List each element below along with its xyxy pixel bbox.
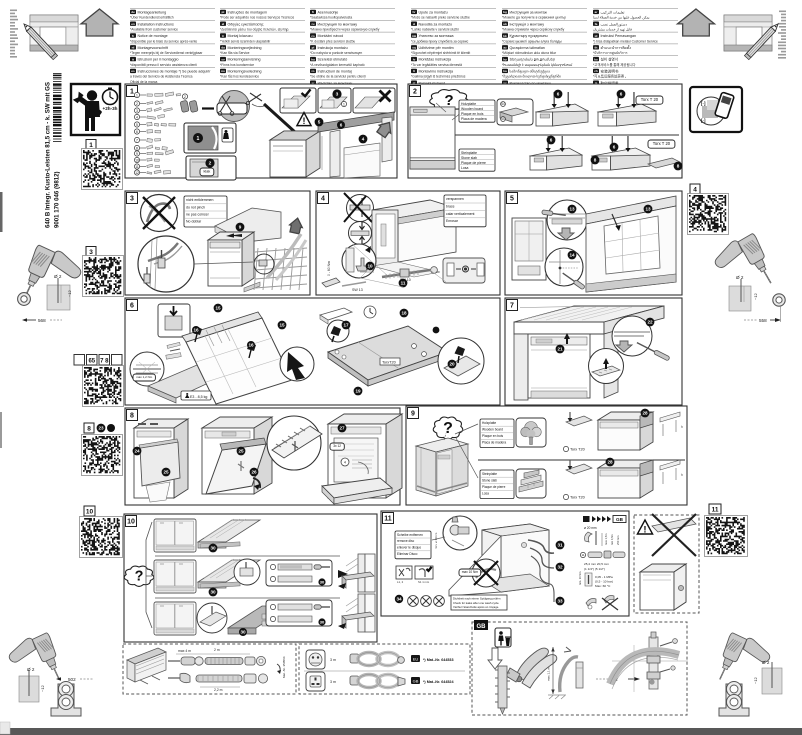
svg-text:Plaque de pierre: Plaque de pierre [461, 161, 486, 165]
svg-text:28: 28 [642, 411, 648, 416]
svg-text:640 B Integr. Kusto-Leisten 81: 640 B Integr. Kusto-Leisten 81,5 cm - k.… [45, 82, 52, 228]
svg-text:15: 15 [215, 306, 221, 311]
svg-text:Инструкция по монтажу: Инструкция по монтажу [318, 22, 358, 26]
svg-text:11: 11 [384, 516, 392, 523]
svg-text:*Saatavissa huoltopalvelusta: *Saatavissa huoltopalvelusta [310, 16, 352, 20]
svg-text:*Sigurohet nëpërmjet shërbimit: *Sigurohet nëpërmjet shërbimit të klient… [411, 51, 470, 55]
svg-text:Torx T20: Torx T20 [570, 448, 585, 452]
svg-text:~12: ~12 [753, 676, 758, 684]
svg-text:7 8: 7 8 [100, 359, 109, 365]
svg-text:502: 502 [68, 677, 76, 682]
svg-text:Οδηγίες εγκατάστασης: Οδηγίες εγκατάστασης [228, 22, 264, 26]
svg-text:*可从售后服务处获得 。: *可从售后服务处获得 。 [593, 74, 628, 79]
svg-text:Vérifier l'étanchéité après un: Vérifier l'étanchéité après un rinçage. [453, 605, 499, 609]
svg-text:Udhëzime për montim: Udhëzime për montim [419, 46, 454, 50]
svg-text:verspannen: verspannen [446, 197, 464, 201]
svg-text:~12: ~12 [67, 289, 72, 297]
svg-text:*հասանելի է սպասարկման կենտրոն: *հասանելի է սպասարկման կենտրոնում [502, 63, 572, 67]
svg-text:5: 5 [510, 196, 514, 203]
svg-text:ka: ka [503, 69, 507, 73]
svg-text:2: 2 [136, 102, 138, 106]
svg-text:S1 1 mm: S1 1 mm [418, 580, 430, 584]
svg-text:9001 170 046 (9812): 9001 170 046 (9812) [54, 171, 61, 228]
svg-text:*се добива преку службата за с: *се добива преку службата за сервис [411, 39, 469, 43]
svg-text:Enrosar: Enrosar [446, 219, 459, 223]
svg-text:3: 3 [130, 196, 134, 203]
svg-text:Instrucciones de montaje *) S: Instrucciones de montaje *) Se puede adq… [138, 70, 212, 74]
svg-text:!: ! [643, 524, 646, 535]
svg-text:25: 25 [238, 449, 244, 454]
svg-text:GB: GB [477, 624, 487, 630]
svg-text:*Tegen meerprijs bij de Servic: *Tegen meerprijs bij de Servicedienst ve… [130, 51, 203, 55]
svg-text:Max: 60 °C: Max: 60 °C [595, 584, 611, 588]
svg-text:(1 1/4") (5 1/2"): (1 1/4") (5 1/2") [584, 567, 605, 571]
svg-text:Placa de madera: Placa de madera [482, 441, 506, 445]
svg-text:11: 11 [581, 553, 584, 557]
svg-text:5: 5 [136, 123, 138, 127]
svg-text:pl: pl [312, 46, 315, 50]
svg-text:Upute za montažu: Upute za montažu [419, 11, 448, 15]
svg-text:Montagevoorschrift: Montagevoorschrift [138, 46, 169, 50]
svg-text:Montageanleitung: Montageanleitung [138, 11, 167, 15]
svg-text:3: 3 [136, 109, 138, 113]
svg-text:Instruções de montagem: Instruções de montagem [228, 11, 268, 15]
svg-text:21: 21 [557, 347, 563, 352]
svg-text:คำแนะนำการติดตั้ง: คำแนะนำการติดตั้ง [601, 45, 632, 50]
svg-text:sq: sq [412, 46, 416, 50]
svg-text:10: 10 [127, 519, 135, 526]
svg-text:4: 4 [136, 115, 138, 119]
svg-text:6: 6 [340, 123, 343, 128]
svg-text:[·]: [·] [701, 101, 706, 106]
svg-text:Instrucțiuni de montaj: Instrucțiuni de montaj [318, 70, 352, 74]
svg-text:max 1,1 m: max 1,1 m [547, 666, 551, 681]
svg-text:Steinplatte: Steinplatte [482, 472, 497, 476]
svg-text:*Можете да получите в сервизни: *Можете да получите в сервизния център [502, 16, 566, 20]
svg-text:3: 3 [89, 249, 93, 256]
svg-text:Losa: Losa [482, 492, 489, 496]
svg-text:~12: ~12 [753, 292, 758, 300]
svg-text:8: 8 [677, 164, 680, 169]
svg-text:1: 1 [197, 136, 200, 142]
svg-text:Instruksi Pemasangan: Instruksi Pemasangan [601, 34, 637, 38]
svg-text:6: 6 [136, 130, 138, 134]
svg-text:19: 19 [355, 389, 361, 394]
svg-text:4: 4 [321, 196, 325, 203]
svg-text:*Müştəri xidmətindən əldə olun: *Müştəri xidmətindən əldə oluna bilər [502, 51, 557, 55]
svg-text:Eliminar Disco: Eliminar Disco [397, 552, 418, 556]
svg-text:zh: zh [594, 69, 598, 73]
svg-text:cs: cs [311, 34, 315, 38]
svg-text:SW 13: SW 13 [352, 288, 363, 292]
svg-text:GB: GB [413, 678, 419, 683]
svg-text:2: 2 [184, 95, 186, 99]
svg-text:30: 30 [210, 590, 216, 595]
svg-text:hu: hu [311, 57, 315, 61]
svg-text:nicht entklemmen: nicht entklemmen [186, 198, 213, 202]
svg-text:31: 31 [557, 543, 563, 548]
svg-text:65: 65 [88, 359, 95, 365]
svg-text:33: 33 [557, 599, 563, 604]
svg-text:kk: kk [503, 34, 507, 38]
svg-text:*Διατίθενται μέσω του σέρβις π: *Διατίθενται μέσω του σέρβις πελατών, εξ… [220, 28, 289, 32]
svg-text:*A vevőszolgálaton keresztül k: *A vevőszolgálaton keresztül kapható [310, 63, 365, 67]
svg-text:Wooden board: Wooden board [482, 427, 503, 431]
svg-text:Monteringsveiledning: Monteringsveiledning [228, 70, 262, 74]
svg-text:11: 11 [401, 281, 406, 286]
svg-text:Упатство за монтажа: Упатство за монтажа [419, 34, 454, 38]
svg-text:?: ? [443, 420, 453, 437]
svg-text:*Über Kundendienst erhältlich: *Über Kundendienst erhältlich [130, 16, 174, 20]
svg-text:Տեղադրման ցուցումներ: Տեղադրման ցուցումներ [510, 57, 556, 62]
svg-text:Steinplatte: Steinplatte [461, 151, 477, 155]
svg-text:*Available from customer servi: *Available from customer service [130, 28, 178, 32]
svg-text:max 4 m: max 4 m [178, 649, 191, 653]
svg-text:7: 7 [510, 303, 514, 310]
svg-text:1: 1 [136, 93, 138, 97]
svg-text:6: 6 [557, 92, 560, 97]
svg-text:*disponible par le biais du se: *disponible par le biais du service aprè… [130, 39, 197, 43]
svg-text:!: ! [303, 116, 306, 126]
svg-text:EU: EU [413, 656, 419, 661]
svg-text:[·]: [·] [701, 118, 706, 123]
svg-text:fa: fa [595, 22, 598, 26]
svg-text:9: 9 [239, 225, 242, 230]
svg-text:uk: uk [503, 22, 507, 26]
svg-text:دستورالعمل نصب: دستورالعمل نصب [601, 21, 628, 26]
svg-text:30: 30 [240, 630, 246, 635]
svg-text:14: 14 [569, 253, 575, 258]
svg-text:sl: sl [413, 22, 416, 26]
svg-text:قابل تهیه از خدمات مشتریان: قابل تهیه از خدمات مشتریان [593, 28, 632, 32]
svg-text:20: 20 [449, 362, 455, 367]
svg-text:3x 12: 3x 12 [333, 444, 341, 448]
svg-text:4: 4 [693, 186, 697, 193]
svg-text:(0,5 - 10 bar): (0,5 - 10 bar) [595, 580, 613, 584]
svg-text:23: 23 [98, 426, 104, 431]
svg-text:1: 1 [89, 142, 93, 149]
svg-text:ro: ro [311, 69, 314, 73]
svg-text:h: h [681, 425, 683, 429]
svg-text:2 m: 2 m [214, 648, 220, 652]
svg-text:lv: lv [413, 57, 416, 61]
svg-text:64: 64 [501, 102, 505, 106]
svg-text:*Kan fås via Service: *Kan fås via Service [220, 51, 250, 55]
svg-text:lt: lt [413, 69, 415, 73]
svg-text:Ø 2: Ø 2 [736, 275, 744, 280]
svg-text:Torx T20: Torx T20 [570, 496, 585, 500]
svg-text:pt: pt [222, 10, 225, 14]
svg-text:10: 10 [86, 508, 94, 515]
svg-text:27: 27 [339, 426, 345, 431]
svg-text:*To var iegādāties servisa die: *To var iegādāties servisa dienestā [411, 63, 462, 67]
svg-text:25: 25 [163, 470, 169, 475]
svg-text:h: h [681, 473, 683, 477]
svg-text:*Do nabycia w punkcie serwisow: *Do nabycia w punkcie serwisowym [310, 51, 362, 55]
svg-text:16: 16 [248, 343, 254, 348]
svg-text:Holzplatte: Holzplatte [482, 421, 496, 425]
svg-text:22: 22 [647, 320, 653, 325]
svg-text:*Može se nabaviti preko servis: *Može se nabaviti preko servisne službe [411, 16, 470, 20]
svg-text:Monteringsvejledning: Monteringsvejledning [228, 46, 262, 50]
svg-text:8: 8 [130, 413, 134, 420]
svg-text:34: 34 [396, 597, 402, 602]
svg-text:remove disc: remove disc [397, 539, 415, 543]
svg-text:no: no [221, 69, 225, 73]
svg-text:min. ø 10mm: min. ø 10mm [434, 532, 438, 549]
svg-text:fi: fi [312, 10, 314, 14]
svg-text:Torx T 20: Torx T 20 [653, 141, 671, 146]
svg-text:az: az [503, 46, 507, 50]
svg-text:Oficial de la marca: Oficial de la marca [130, 80, 157, 84]
svg-text:10: 10 [135, 158, 139, 162]
svg-text:*Yetkili servis üzerinden ulaş: *Yetkili servis üzerinden ulaşılabilir [220, 39, 271, 43]
svg-text:klak: klak [204, 170, 211, 174]
svg-text:4: 4 [362, 137, 365, 142]
svg-text:*Lahko nabavite v servisni slu: *Lahko nabavite v servisni službi [411, 28, 459, 32]
svg-text:6: 6 [130, 303, 134, 310]
svg-text:Monteringsanvisning: Monteringsanvisning [228, 58, 261, 62]
svg-text:*Можно приобрести через сервис: *Можно приобрести через сервисную службу [310, 28, 380, 32]
svg-text:3 m: 3 m [330, 658, 336, 662]
svg-text:max 1,2 Nm: max 1,2 Nm [136, 375, 153, 379]
svg-text:TorxT20: TorxT20 [382, 361, 396, 365]
svg-text:13: 13 [569, 207, 575, 212]
svg-text:da: da [221, 46, 225, 50]
svg-text:Құрастыру нұсқаулығы: Құрастыру нұсқаулығы [510, 34, 548, 38]
svg-text:11: 11 [135, 165, 139, 169]
svg-text:8: 8 [594, 158, 597, 163]
svg-text:Instrukcja montażu: Instrukcja montażu [318, 46, 348, 50]
svg-text:*შეგიძლიათ მიიღოთ სერვისცენტრშ: *შეგიძლიათ მიიღოთ სერვისცენტრში [502, 75, 561, 79]
svg-text:13: 13 [645, 207, 651, 212]
svg-text:სამონტაჟო ინსტრუქცია: სამონტაჟო ინსტრუქცია [510, 69, 551, 74]
svg-text:Stone slab: Stone slab [482, 478, 497, 482]
svg-text:*Se obține de la serviciul pen: *Se obține de la serviciul pentru clienț… [310, 75, 366, 79]
svg-text:15: 15 [279, 323, 285, 328]
svg-text:*disponibili presso il servizi: *disponibili presso il servizio assisten… [130, 63, 197, 67]
svg-text:4: 4 [344, 461, 346, 465]
svg-text:ko: ko [594, 57, 598, 61]
svg-text:Asennusohje: Asennusohje [318, 11, 339, 15]
svg-text:Stone slab: Stone slab [461, 156, 477, 160]
svg-text:Інструкція з монтажу: Інструкція з монтажу [510, 22, 545, 26]
svg-text:Инструкция за монтаж: Инструкция за монтаж [510, 11, 548, 15]
svg-text:9: 9 [411, 411, 415, 418]
svg-text:nl: nl [132, 46, 135, 50]
svg-text:9: 9 [136, 152, 138, 156]
svg-text:Navodila za montažo: Navodila za montažo [419, 22, 453, 26]
svg-text:calar verticalement: calar verticalement [446, 212, 475, 216]
svg-text:L1, 2: L1, 2 [397, 580, 404, 584]
svg-text:Placa de madera: Placa de madera [461, 117, 487, 121]
svg-text:3 m: 3 m [330, 680, 336, 684]
svg-text:Quraşdırma təlimatları: Quraşdırma təlimatları [510, 46, 546, 50]
svg-text:25,4 mm 20,5 mm: 25,4 mm 20,5 mm [584, 562, 609, 566]
svg-text:*) bisa didapatkan melalui Cus: *) bisa didapatkan melalui Customer Serv… [593, 39, 658, 43]
svg-text:E3 - 8,5 kg: E3 - 8,5 kg [190, 395, 207, 399]
svg-text:enlever le disque: enlever le disque [397, 546, 421, 550]
svg-text:*มีบริการจากศูนย์บริการ: *มีบริการจากศูนย์บริการ [593, 50, 628, 55]
svg-text:65: 65 [501, 117, 505, 121]
svg-text:6: 6 [620, 92, 623, 97]
svg-text:ø 20 mm: ø 20 mm [584, 526, 597, 530]
svg-text:do not pinch: do not pinch [186, 205, 205, 209]
svg-text:11: 11 [712, 506, 719, 513]
svg-text:24: 24 [134, 449, 140, 454]
svg-text:28: 28 [607, 460, 613, 465]
svg-text:2: 2 [209, 161, 212, 167]
svg-text:min 0,5m: min 0,5m [610, 534, 614, 545]
svg-text:No doblar: No doblar [186, 220, 202, 224]
svg-text:bg: bg [503, 10, 507, 14]
svg-text:12: 12 [135, 171, 139, 175]
svg-text:32: 32 [557, 565, 563, 570]
svg-text:ru: ru [311, 22, 314, 26]
svg-text:30: 30 [210, 546, 216, 551]
svg-text:mm. 10 Nm: mm. 10 Nm [578, 572, 582, 585]
svg-text:0 - 60 Nm: 0 - 60 Nm [327, 261, 331, 276]
svg-text:brace: brace [446, 204, 455, 208]
svg-text:?: ? [444, 92, 453, 109]
svg-text:18: 18 [401, 311, 407, 316]
svg-text:يمكن الحصول عليها من خدمة العم: يمكن الحصول عليها من خدمة العملاء لدينا [593, 16, 649, 20]
svg-text:a través del Servicio de Asist: a través del Servicio de Asistencia Técn… [130, 75, 193, 79]
svg-text:el: el [222, 22, 225, 26]
svg-text:sv: sv [221, 57, 225, 61]
svg-text:安装说明书: 安装说明书 [601, 69, 619, 74]
svg-text:Ø 2: Ø 2 [27, 667, 35, 672]
svg-text:Mat.-Nr. 350564: Mat.-Nr. 350564 [282, 656, 286, 678]
svg-text:568: 568 [38, 318, 46, 323]
svg-text:es: es [131, 69, 135, 73]
svg-text:558: 558 [759, 318, 767, 323]
svg-text:Notice de montage: Notice de montage [138, 34, 168, 38]
svg-text:*고객서비스를 통해 제공됩니다: *고객서비스를 통해 제공됩니다 [593, 62, 636, 67]
svg-text:max 10 Nm: max 10 Nm [462, 570, 479, 574]
svg-text:it: it [132, 57, 134, 61]
svg-text:2: 2 [413, 89, 417, 96]
svg-text:Montāžas instrukcija: Montāžas instrukcija [419, 58, 452, 62]
svg-text:1: 1 [130, 89, 134, 96]
svg-text:*Можна отримати через сервісну: *Можна отримати через сервісну службу [502, 28, 565, 32]
svg-text:تعليمات التركيب: تعليمات التركيب [601, 10, 625, 15]
svg-text:30: 30 [320, 619, 325, 624]
svg-text:Istruzioni per il montaggio: Istruzioni per il montaggio [138, 58, 179, 62]
svg-text:Montavimo instrukcija: Montavimo instrukcija [419, 70, 454, 74]
svg-text:hy: hy [503, 57, 507, 61]
svg-text:de: de [131, 10, 135, 14]
svg-text:+2h-3h: +2h-3h [103, 106, 118, 111]
svg-text:~12: ~12 [40, 684, 45, 692]
svg-text:*K dostání přes servisní služb: *K dostání přes servisní službu [310, 39, 355, 43]
svg-text:6: 6 [613, 145, 616, 150]
svg-text:GB: GB [616, 517, 624, 522]
svg-text:ne pas coincer: ne pas coincer [186, 213, 210, 217]
svg-text:Scheibe entfernen: Scheibe entfernen [397, 533, 423, 537]
svg-text:en: en [131, 22, 135, 26]
svg-text:max 1,5m: max 1,5m [604, 534, 608, 545]
svg-text:Plaque de pierre: Plaque de pierre [482, 485, 506, 489]
svg-text:250 mm: 250 mm [616, 536, 620, 545]
svg-text:설치 설명서: 설치 설명서 [601, 57, 619, 62]
svg-text:3: 3 [336, 92, 339, 98]
svg-text:Ø 2: Ø 2 [762, 660, 770, 665]
svg-text:th: th [595, 46, 598, 50]
svg-text:8: 8 [136, 146, 138, 150]
svg-text:16: 16 [193, 328, 199, 333]
svg-text:mk: mk [412, 34, 417, 38]
svg-text:26: 26 [251, 470, 257, 475]
svg-text:30: 30 [320, 579, 325, 584]
svg-text:id: id [595, 34, 598, 38]
svg-text:Torx T 20: Torx T 20 [641, 97, 659, 102]
svg-text:Plaque en bois: Plaque en bois [482, 434, 503, 438]
svg-text:Installation instructions: Installation instructions [138, 22, 175, 26]
svg-text:Montaj kılavuzu: Montaj kılavuzu [228, 34, 253, 38]
svg-text:*Galima įsigyti iš techninės p: *Galima įsigyti iš techninės priežiūros [411, 75, 466, 79]
svg-text:Losa: Losa [461, 166, 468, 170]
svg-text:*Pode ser adquirido nos nossos: *Pode ser adquirido nos nossos Serviços … [220, 16, 295, 20]
svg-text:1: 1 [343, 102, 345, 106]
svg-text:*Сервис қызметі арқылы алуға б: *Сервис қызметі арқылы алуға болады [502, 39, 562, 43]
svg-text:0,05 - 1 MPa: 0,05 - 1 MPa [595, 575, 613, 579]
svg-text:5: 5 [318, 120, 321, 125]
svg-text:17: 17 [343, 323, 349, 328]
svg-text:*) Mat.-Nr. 644533: *) Mat.-Nr. 644533 [423, 658, 454, 662]
svg-text:?: ? [135, 569, 144, 585]
svg-text:Szerelési útmutató: Szerelési útmutató [318, 58, 348, 62]
svg-text:*) Mat.-Nr. 644524: *) Mat.-Nr. 644524 [423, 680, 454, 684]
svg-text:2,2 m: 2,2 m [214, 688, 223, 692]
svg-text:6: 6 [550, 138, 553, 143]
svg-text:*Kan fås hos kundeservice: *Kan fås hos kundeservice [220, 75, 259, 79]
svg-text:7: 7 [136, 138, 138, 142]
svg-text:8: 8 [87, 425, 91, 432]
svg-text:*Finns hos kundservice: *Finns hos kundservice [220, 63, 254, 67]
svg-text:Montážní návod: Montážní návod [318, 34, 344, 38]
